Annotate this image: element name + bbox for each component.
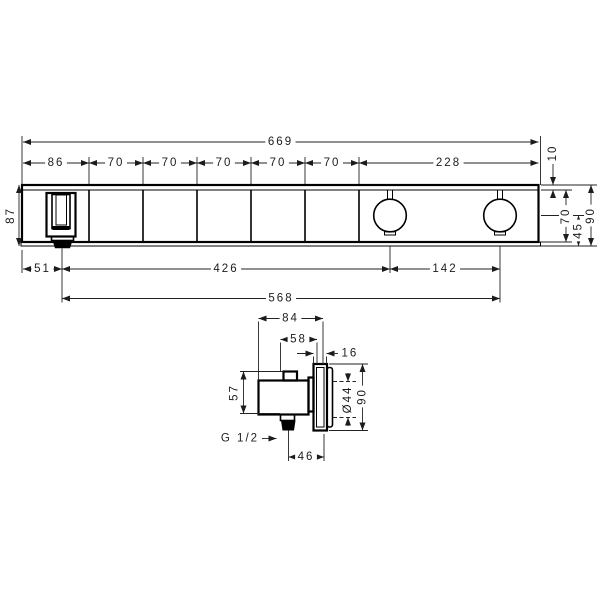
dim-label-seg-70b: 70 — [162, 157, 179, 169]
dim-label-face-height: 70 — [560, 208, 572, 225]
thread-nipple — [281, 421, 296, 431]
dim-label-depth-total: 84 — [282, 313, 299, 325]
dim-label-seg-86: 86 — [48, 157, 65, 169]
dim-label-knob-diameter: Ø44 — [342, 386, 354, 414]
page-background — [0, 0, 600, 600]
dim-label-seg-228: 228 — [436, 157, 461, 169]
dim-label-axis-to-front: 46 — [298, 451, 315, 463]
dim-label-front-projection: 16 — [342, 348, 359, 360]
dim-label-body-height: 57 — [229, 384, 241, 401]
dim-label-height-right: 90 — [585, 207, 597, 224]
dim-label-plate-height: 90 — [357, 388, 369, 405]
holder-clip — [53, 226, 70, 230]
dim-label-total-width: 669 — [268, 136, 293, 148]
dim-label-seg-70a: 70 — [108, 157, 125, 169]
dim-label-outlet-to-first-knob: 426 — [213, 263, 238, 275]
outlet-spout — [53, 241, 73, 249]
dim-label-center-to-bottom: 45 — [573, 222, 585, 239]
dim-label-edge-offset: 10 — [547, 145, 559, 162]
dim-label-seg-70d: 70 — [270, 157, 287, 169]
technical-drawing-page: 669 86 70 70 70 70 70 228 87 — [0, 0, 600, 600]
dim-label-knob-spacing: 142 — [432, 263, 457, 275]
dimension-drawing: 669 86 70 70 70 70 70 228 87 — [0, 0, 600, 600]
dim-label-seg-70e: 70 — [324, 157, 341, 169]
dim-label-height-left: 87 — [5, 207, 17, 224]
dim-label-depth-body: 58 — [290, 334, 307, 346]
dim-label-seg-70c: 70 — [216, 157, 233, 169]
dim-label-thread: G 1/2 — [221, 433, 259, 445]
dim-label-outlet-to-second-knob: 568 — [268, 293, 293, 305]
dim-label-outlet-offset: 51 — [34, 263, 51, 275]
